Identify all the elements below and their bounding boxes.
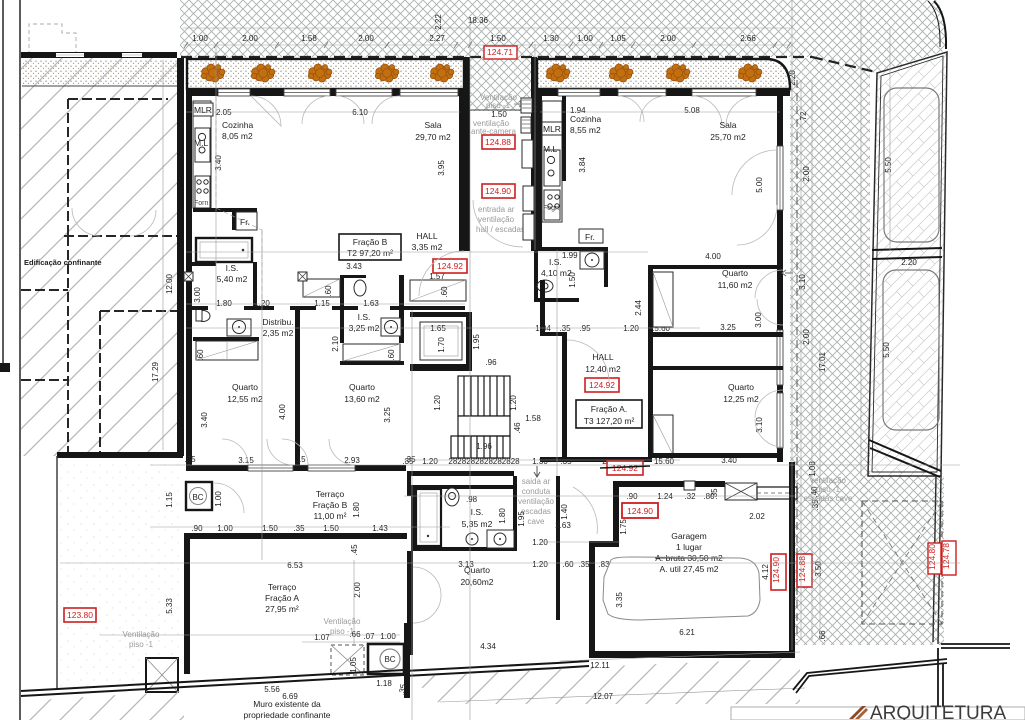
svg-text:A. util 27,45 m2: A. util 27,45 m2 (659, 564, 718, 574)
svg-text:6.21: 6.21 (679, 628, 695, 637)
svg-text:12,25 m2: 12,25 m2 (723, 394, 759, 404)
svg-text:.98: .98 (466, 495, 478, 504)
svg-text:.66: .66 (349, 630, 361, 639)
svg-text:1.58: 1.58 (301, 34, 317, 43)
svg-text:hall / escadas: hall / escadas (476, 225, 525, 234)
svg-text:3.95: 3.95 (437, 160, 446, 176)
svg-text:124.90: 124.90 (771, 557, 781, 583)
svg-text:27,95 m²: 27,95 m² (265, 604, 299, 614)
svg-text:13,60 m2: 13,60 m2 (344, 394, 380, 404)
svg-text:1.58: 1.58 (525, 414, 541, 423)
svg-text:1.00: 1.00 (214, 491, 223, 507)
svg-text:piso -1: piso -1 (486, 101, 511, 110)
svg-text:3.15: 3.15 (238, 456, 254, 465)
svg-text:.96: .96 (485, 358, 497, 367)
svg-text:2.63: 2.63 (555, 521, 571, 530)
svg-text:124.78: 124.78 (941, 543, 951, 569)
svg-text:124.90: 124.90 (627, 506, 653, 516)
svg-text:3.43: 3.43 (346, 262, 362, 271)
svg-text:Fração A: Fração A (265, 593, 299, 603)
svg-text:Fração B: Fração B (313, 500, 348, 510)
svg-text:Quarto: Quarto (232, 382, 258, 392)
svg-text:3.10: 3.10 (755, 417, 764, 433)
svg-text:1.43: 1.43 (372, 524, 388, 533)
svg-text:ventilação: ventilação (478, 215, 515, 224)
svg-text:29,70 m2: 29,70 m2 (415, 132, 451, 142)
svg-text:2.66: 2.66 (740, 34, 756, 43)
svg-text:1.95: 1.95 (517, 511, 526, 527)
svg-text:4.34: 4.34 (480, 642, 496, 651)
svg-text:12.07: 12.07 (593, 692, 614, 701)
svg-text:MLR: MLR (543, 124, 561, 134)
svg-text:1.04: 1.04 (535, 324, 551, 333)
svg-text:ventilação: ventilação (810, 476, 847, 485)
svg-text:Edificação confinante: Edificação confinante (24, 258, 102, 267)
svg-text:2.02: 2.02 (749, 512, 765, 521)
svg-text:12,55 m2: 12,55 m2 (227, 394, 263, 404)
svg-text:Fr.: Fr. (585, 232, 595, 242)
svg-text:I.S.: I.S. (226, 263, 239, 273)
svg-text:1.20: 1.20 (623, 324, 639, 333)
svg-text:2.00: 2.00 (242, 34, 258, 43)
svg-text:5.50: 5.50 (882, 342, 891, 358)
svg-text:6.69: 6.69 (282, 692, 298, 701)
svg-text:17.01: 17.01 (818, 351, 827, 372)
svg-text:.35: .35 (578, 560, 590, 569)
svg-text:5,40 m2: 5,40 m2 (217, 274, 248, 284)
svg-text:Fração A.: Fração A. (591, 404, 627, 414)
svg-text:.95: .95 (579, 324, 591, 333)
svg-text:1.95: 1.95 (472, 334, 481, 350)
svg-text:2.44: 2.44 (634, 300, 643, 316)
svg-text:8,55 m2: 8,55 m2 (570, 125, 601, 135)
svg-text:1.20: 1.20 (532, 560, 548, 569)
svg-text:.35: .35 (402, 457, 414, 466)
svg-text:1.05: 1.05 (349, 657, 358, 673)
svg-text:1.94: 1.94 (570, 106, 586, 115)
svg-text:1.30: 1.30 (543, 34, 559, 43)
svg-text:.45: .45 (350, 544, 359, 556)
svg-text:saida ar: saida ar (522, 477, 551, 486)
svg-text:Distribu.: Distribu. (262, 317, 293, 327)
svg-text:.32: .32 (684, 492, 696, 501)
svg-text:1.96: 1.96 (476, 442, 492, 451)
svg-text:2,35 m2: 2,35 m2 (263, 328, 294, 338)
svg-text:8,05 m2: 8,05 m2 (222, 131, 253, 141)
svg-text:1.24: 1.24 (657, 492, 673, 501)
svg-text:20,60m2: 20,60m2 (460, 577, 493, 587)
svg-text:piso -1: piso -1 (129, 640, 154, 649)
svg-text:.35: .35 (293, 524, 305, 533)
svg-text:25,70 m2: 25,70 m2 (710, 132, 746, 142)
svg-text:2.00: 2.00 (660, 34, 676, 43)
svg-text:Terraço: Terraço (316, 489, 345, 499)
svg-text:6.53: 6.53 (287, 561, 303, 570)
svg-text:.15: .15 (294, 455, 306, 464)
svg-text:1.18: 1.18 (376, 679, 392, 688)
svg-text:1.70: 1.70 (437, 337, 446, 353)
svg-text:4.12: 4.12 (761, 564, 770, 580)
svg-text:Fração B: Fração B (353, 237, 388, 247)
svg-text:12,40 m2: 12,40 m2 (585, 364, 621, 374)
svg-text:3.84: 3.84 (578, 157, 587, 173)
svg-text:2.27: 2.27 (429, 34, 445, 43)
svg-text:Ventilação: Ventilação (123, 630, 160, 639)
svg-text:1.08: 1.08 (808, 461, 817, 477)
svg-text:3,35 m2: 3,35 m2 (412, 242, 443, 252)
svg-text:.80: .80 (703, 492, 715, 501)
svg-text:5.08: 5.08 (684, 106, 700, 115)
svg-text:124.71: 124.71 (487, 47, 513, 57)
svg-text:Cozinha: Cozinha (570, 114, 601, 124)
svg-text:.35: .35 (559, 324, 571, 333)
svg-text:1 lugar: 1 lugar (676, 542, 702, 552)
svg-text:Cozinha: Cozinha (222, 120, 253, 130)
svg-text:3.13: 3.13 (458, 560, 474, 569)
svg-text:.72: .72 (799, 111, 808, 123)
svg-text:piso -1: piso -1 (816, 485, 841, 494)
svg-text:2.22: 2.22 (434, 14, 443, 30)
svg-text:11,60 m2: 11,60 m2 (718, 280, 753, 290)
svg-text:5,35 m2: 5,35 m2 (462, 519, 493, 529)
svg-text:M.L: M.L (194, 138, 208, 148)
svg-text:BC: BC (192, 493, 203, 502)
svg-text:1.20: 1.20 (433, 395, 442, 411)
svg-text:1.80: 1.80 (216, 299, 232, 308)
svg-text:BC: BC (384, 655, 395, 664)
svg-text:17.29: 17.29 (151, 361, 160, 382)
svg-text:1.07: 1.07 (314, 633, 330, 642)
svg-text:5.00: 5.00 (755, 177, 764, 193)
svg-text:1.80: 1.80 (352, 502, 361, 518)
svg-text:ARQUITETURA: ARQUITETURA (870, 703, 1007, 720)
svg-text:Terraço: Terraço (268, 582, 297, 592)
svg-text:3.35: 3.35 (615, 592, 624, 608)
svg-text:123.80: 123.80 (67, 610, 93, 620)
svg-text:.60: .60 (562, 560, 574, 569)
svg-text:1.50: 1.50 (491, 110, 507, 119)
svg-text:3.00: 3.00 (193, 287, 202, 303)
svg-text:propriedade confinante: propriedade confinante (244, 710, 331, 720)
svg-text:1.05: 1.05 (610, 34, 626, 43)
svg-text:.90: .90 (191, 524, 203, 533)
svg-text:1.99: 1.99 (562, 251, 578, 260)
svg-text:18.36: 18.36 (468, 16, 489, 25)
svg-text:2.10: 2.10 (331, 336, 340, 352)
svg-text:.60: .60 (440, 286, 449, 298)
svg-text:1.75: 1.75 (619, 519, 628, 535)
svg-text:124.88: 124.88 (485, 137, 511, 147)
svg-text:124.92: 124.92 (589, 380, 615, 390)
svg-text:3.40: 3.40 (200, 412, 209, 428)
svg-text:124.90: 124.90 (485, 186, 511, 196)
svg-text:.60: .60 (324, 285, 333, 297)
svg-text:1.50: 1.50 (490, 34, 506, 43)
svg-text:M.L: M.L (543, 144, 557, 154)
svg-text:1.00: 1.00 (192, 34, 208, 43)
svg-text:1.00: 1.00 (217, 524, 233, 533)
svg-text:2.00: 2.00 (802, 329, 811, 345)
svg-text:.07: .07 (363, 632, 375, 641)
svg-text:cave: cave (528, 517, 545, 526)
svg-text:Sala: Sala (719, 120, 736, 130)
svg-text:T2 97,20 m²: T2 97,20 m² (347, 248, 393, 258)
svg-text:Quarto: Quarto (722, 268, 748, 278)
svg-text:15.60: 15.60 (654, 457, 675, 466)
svg-text:1.65: 1.65 (430, 324, 446, 333)
svg-text:I.S.: I.S. (549, 257, 562, 267)
svg-text:.90: .90 (626, 492, 638, 501)
svg-text:.46: .46 (513, 422, 522, 434)
svg-text:1.50: 1.50 (262, 524, 278, 533)
svg-text:12.00: 12.00 (165, 273, 174, 294)
svg-text:.60: .60 (196, 349, 205, 361)
svg-text:HALL: HALL (416, 231, 438, 241)
svg-text:MLR: MLR (194, 105, 212, 115)
svg-text:2.00: 2.00 (353, 582, 362, 598)
svg-text:8: 8 (534, 283, 539, 292)
svg-text:1.50: 1.50 (568, 272, 577, 288)
svg-text:1.00: 1.00 (380, 632, 396, 641)
svg-text:.60: .60 (387, 349, 396, 361)
svg-text:1.50: 1.50 (323, 524, 339, 533)
svg-text:3.25: 3.25 (720, 323, 736, 332)
svg-text:124.88: 124.88 (797, 556, 807, 582)
svg-text:I.S.: I.S. (358, 312, 371, 322)
svg-text:Forn: Forn (194, 200, 209, 207)
svg-text:1.40: 1.40 (560, 504, 569, 520)
svg-text:ventilação: ventilação (518, 497, 555, 506)
svg-text:I.S.: I.S. (471, 507, 484, 517)
svg-text:Fogn: Fogn (543, 205, 559, 212)
svg-text:11,00 m²: 11,00 m² (314, 511, 347, 521)
svg-text:3.25: 3.25 (383, 407, 392, 423)
svg-text:2828282828282828: 2828282828282828 (448, 457, 520, 466)
svg-text:4.00: 4.00 (705, 252, 721, 261)
svg-text:6.10: 6.10 (352, 108, 368, 117)
svg-text:124.92: 124.92 (437, 261, 463, 271)
svg-text:5.56: 5.56 (264, 685, 280, 694)
svg-text:1.63: 1.63 (363, 299, 379, 308)
svg-text:1.20: 1.20 (509, 395, 518, 411)
svg-text:entrada ar: entrada ar (478, 205, 515, 214)
svg-text:1.80: 1.80 (498, 508, 507, 524)
svg-text:escadas cave: escadas cave (804, 494, 853, 503)
svg-text:1.20: 1.20 (532, 538, 548, 547)
svg-text:1.20: 1.20 (422, 457, 438, 466)
svg-text:1.00: 1.00 (577, 34, 593, 43)
svg-text:124.80: 124.80 (927, 544, 937, 570)
svg-text:Quarto: Quarto (349, 382, 375, 392)
svg-text:2.00: 2.00 (358, 34, 374, 43)
svg-text:Garagem: Garagem (671, 531, 706, 541)
svg-text:1.15: 1.15 (314, 299, 330, 308)
svg-text:2.05: 2.05 (216, 108, 232, 117)
svg-text:4.00: 4.00 (278, 404, 287, 420)
svg-text:5.50: 5.50 (884, 157, 893, 173)
svg-text:2.20: 2.20 (901, 258, 917, 267)
svg-text:3.40: 3.40 (214, 155, 223, 171)
svg-text:.66: .66 (818, 630, 827, 642)
svg-text:3.10: 3.10 (798, 274, 807, 290)
svg-text:conduta: conduta (522, 487, 551, 496)
svg-text:2.00: 2.00 (802, 166, 811, 182)
svg-text:Quarto: Quarto (728, 382, 754, 392)
svg-text:.35: .35 (184, 455, 196, 464)
svg-text:T3 127,20 m²: T3 127,20 m² (584, 416, 635, 426)
svg-text:Sala: Sala (424, 120, 441, 130)
svg-text:12.11: 12.11 (590, 661, 610, 670)
svg-text:Ventilação: Ventilação (324, 617, 361, 626)
